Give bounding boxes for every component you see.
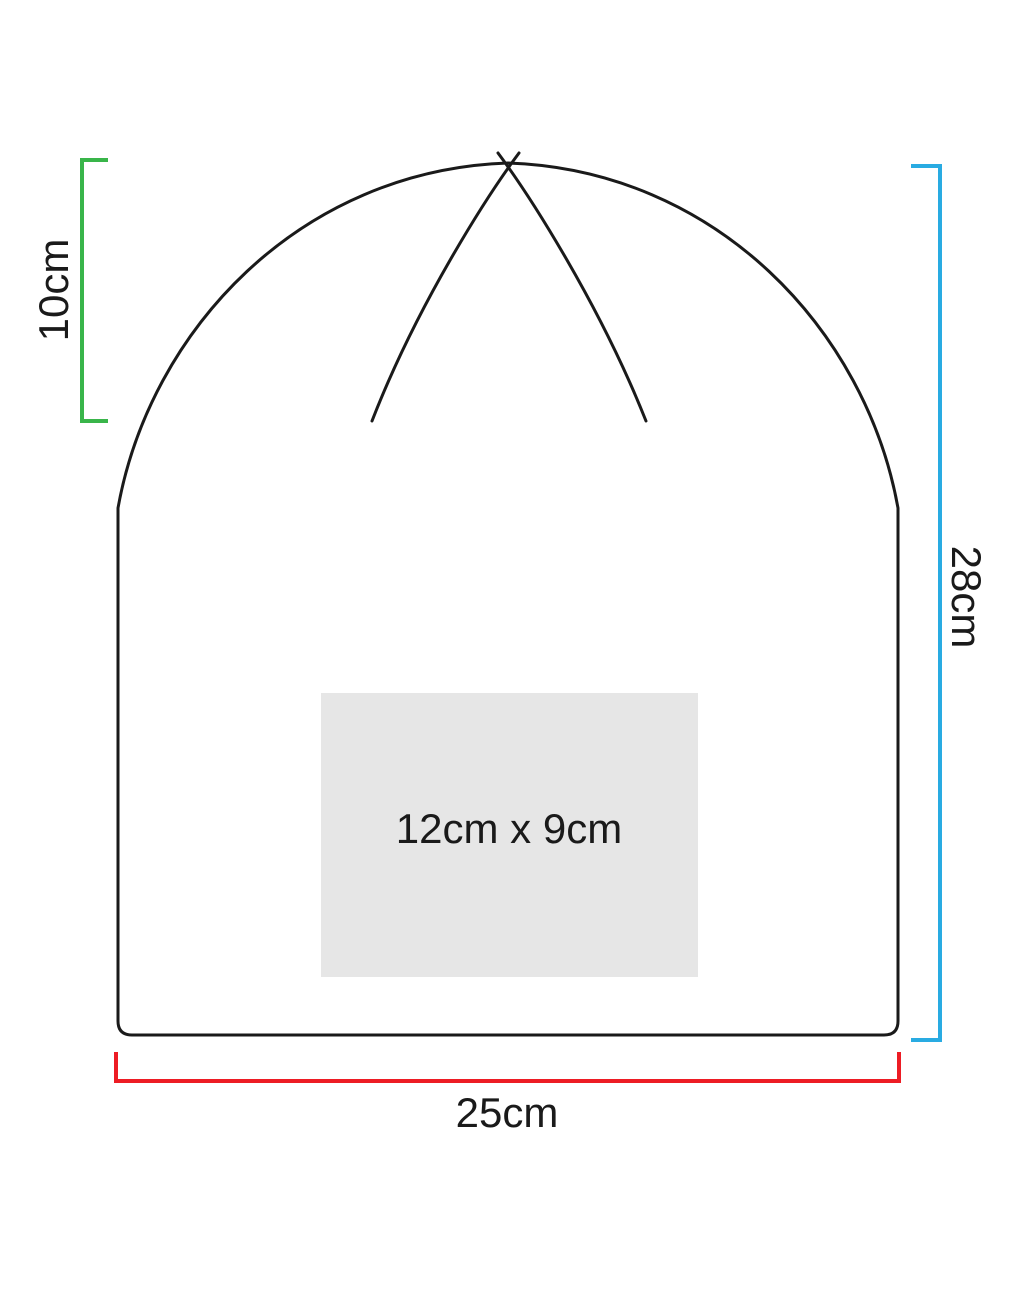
- crown-height-bracket: [82, 160, 108, 421]
- total-height-bracket: [911, 166, 940, 1040]
- width-bracket: [116, 1052, 899, 1081]
- diagram-svg: 12cm x 9cm 10cm 28cm 25cm: [0, 0, 1024, 1304]
- crown-height-label: 10cm: [30, 239, 77, 342]
- beanie-size-diagram: 12cm x 9cm 10cm 28cm 25cm: [0, 0, 1024, 1304]
- total-height-label: 28cm: [943, 546, 990, 649]
- print-area-label: 12cm x 9cm: [396, 805, 622, 852]
- width-label: 25cm: [456, 1089, 559, 1136]
